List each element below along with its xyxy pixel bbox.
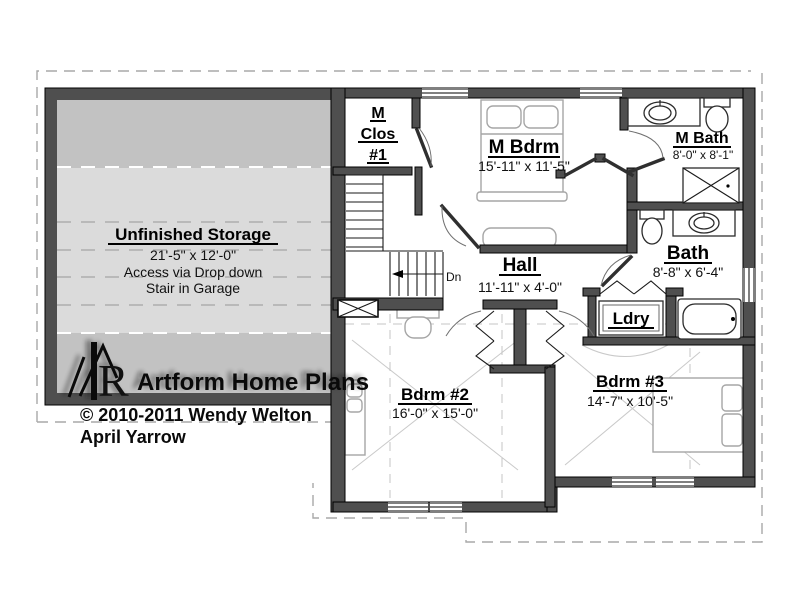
window	[580, 88, 622, 98]
copyright-text: © 2010-2011 Wendy Welton	[80, 405, 312, 425]
chase-box	[338, 300, 378, 317]
client-name-text: April Yarrow	[80, 427, 187, 447]
window	[422, 88, 468, 98]
m-clos-label-3: #1	[369, 147, 387, 164]
m-bath-toilet	[704, 98, 730, 132]
bdrm3-dims-label: 14'-7" x 10'-5"	[587, 393, 673, 409]
floor-plan-page: R Artform Home Plans	[0, 0, 800, 600]
m-bdrm-name-label: M Bdrm	[489, 137, 560, 158]
hall-dims-label: 11'-11" x 4'-0"	[478, 279, 562, 295]
storage-name-label: Unfinished Storage	[115, 225, 271, 244]
m-clos-label-1: M	[371, 105, 384, 122]
bdrm2-dims-label: 16'-0" x 15'-0"	[392, 405, 478, 421]
bath-sink	[673, 210, 735, 236]
m-bath-name-label: M Bath	[675, 130, 728, 147]
bedroom3-bed	[653, 378, 745, 452]
m-bdrm-dims-label: 15'-11" x 11'-5"	[478, 158, 570, 174]
hall-name-label: Hall	[503, 255, 538, 276]
window	[743, 268, 755, 302]
window	[656, 477, 694, 487]
storage-note2-label: Stair in Garage	[146, 280, 240, 296]
ldry-name-label: Ldry	[613, 309, 650, 328]
m-bath-shower	[683, 168, 739, 203]
bdrm2-name-label: Bdrm #2	[401, 385, 469, 404]
bath-dims-label: 8'-8" x 6'-4"	[653, 264, 724, 280]
window	[388, 502, 428, 512]
storage-note1-label: Access via Drop down	[124, 264, 263, 280]
window	[612, 477, 652, 487]
bdrm3-name-label: Bdrm #3	[596, 372, 664, 391]
bathtub	[678, 299, 741, 339]
stairs-down-label: Dn	[446, 270, 461, 284]
floor-plan-drawing: R Artform Home Plans	[0, 0, 800, 600]
m-clos-label-2: Clos	[361, 126, 396, 143]
window	[430, 502, 462, 512]
bath-name-label: Bath	[667, 243, 709, 264]
bath-toilet	[640, 210, 664, 244]
m-bath-dims-label: 8'-0" x 8'-1"	[673, 148, 733, 162]
m-bath-sink	[628, 98, 700, 126]
storage-dims-label: 21'-5" x 12'-0"	[150, 247, 236, 263]
